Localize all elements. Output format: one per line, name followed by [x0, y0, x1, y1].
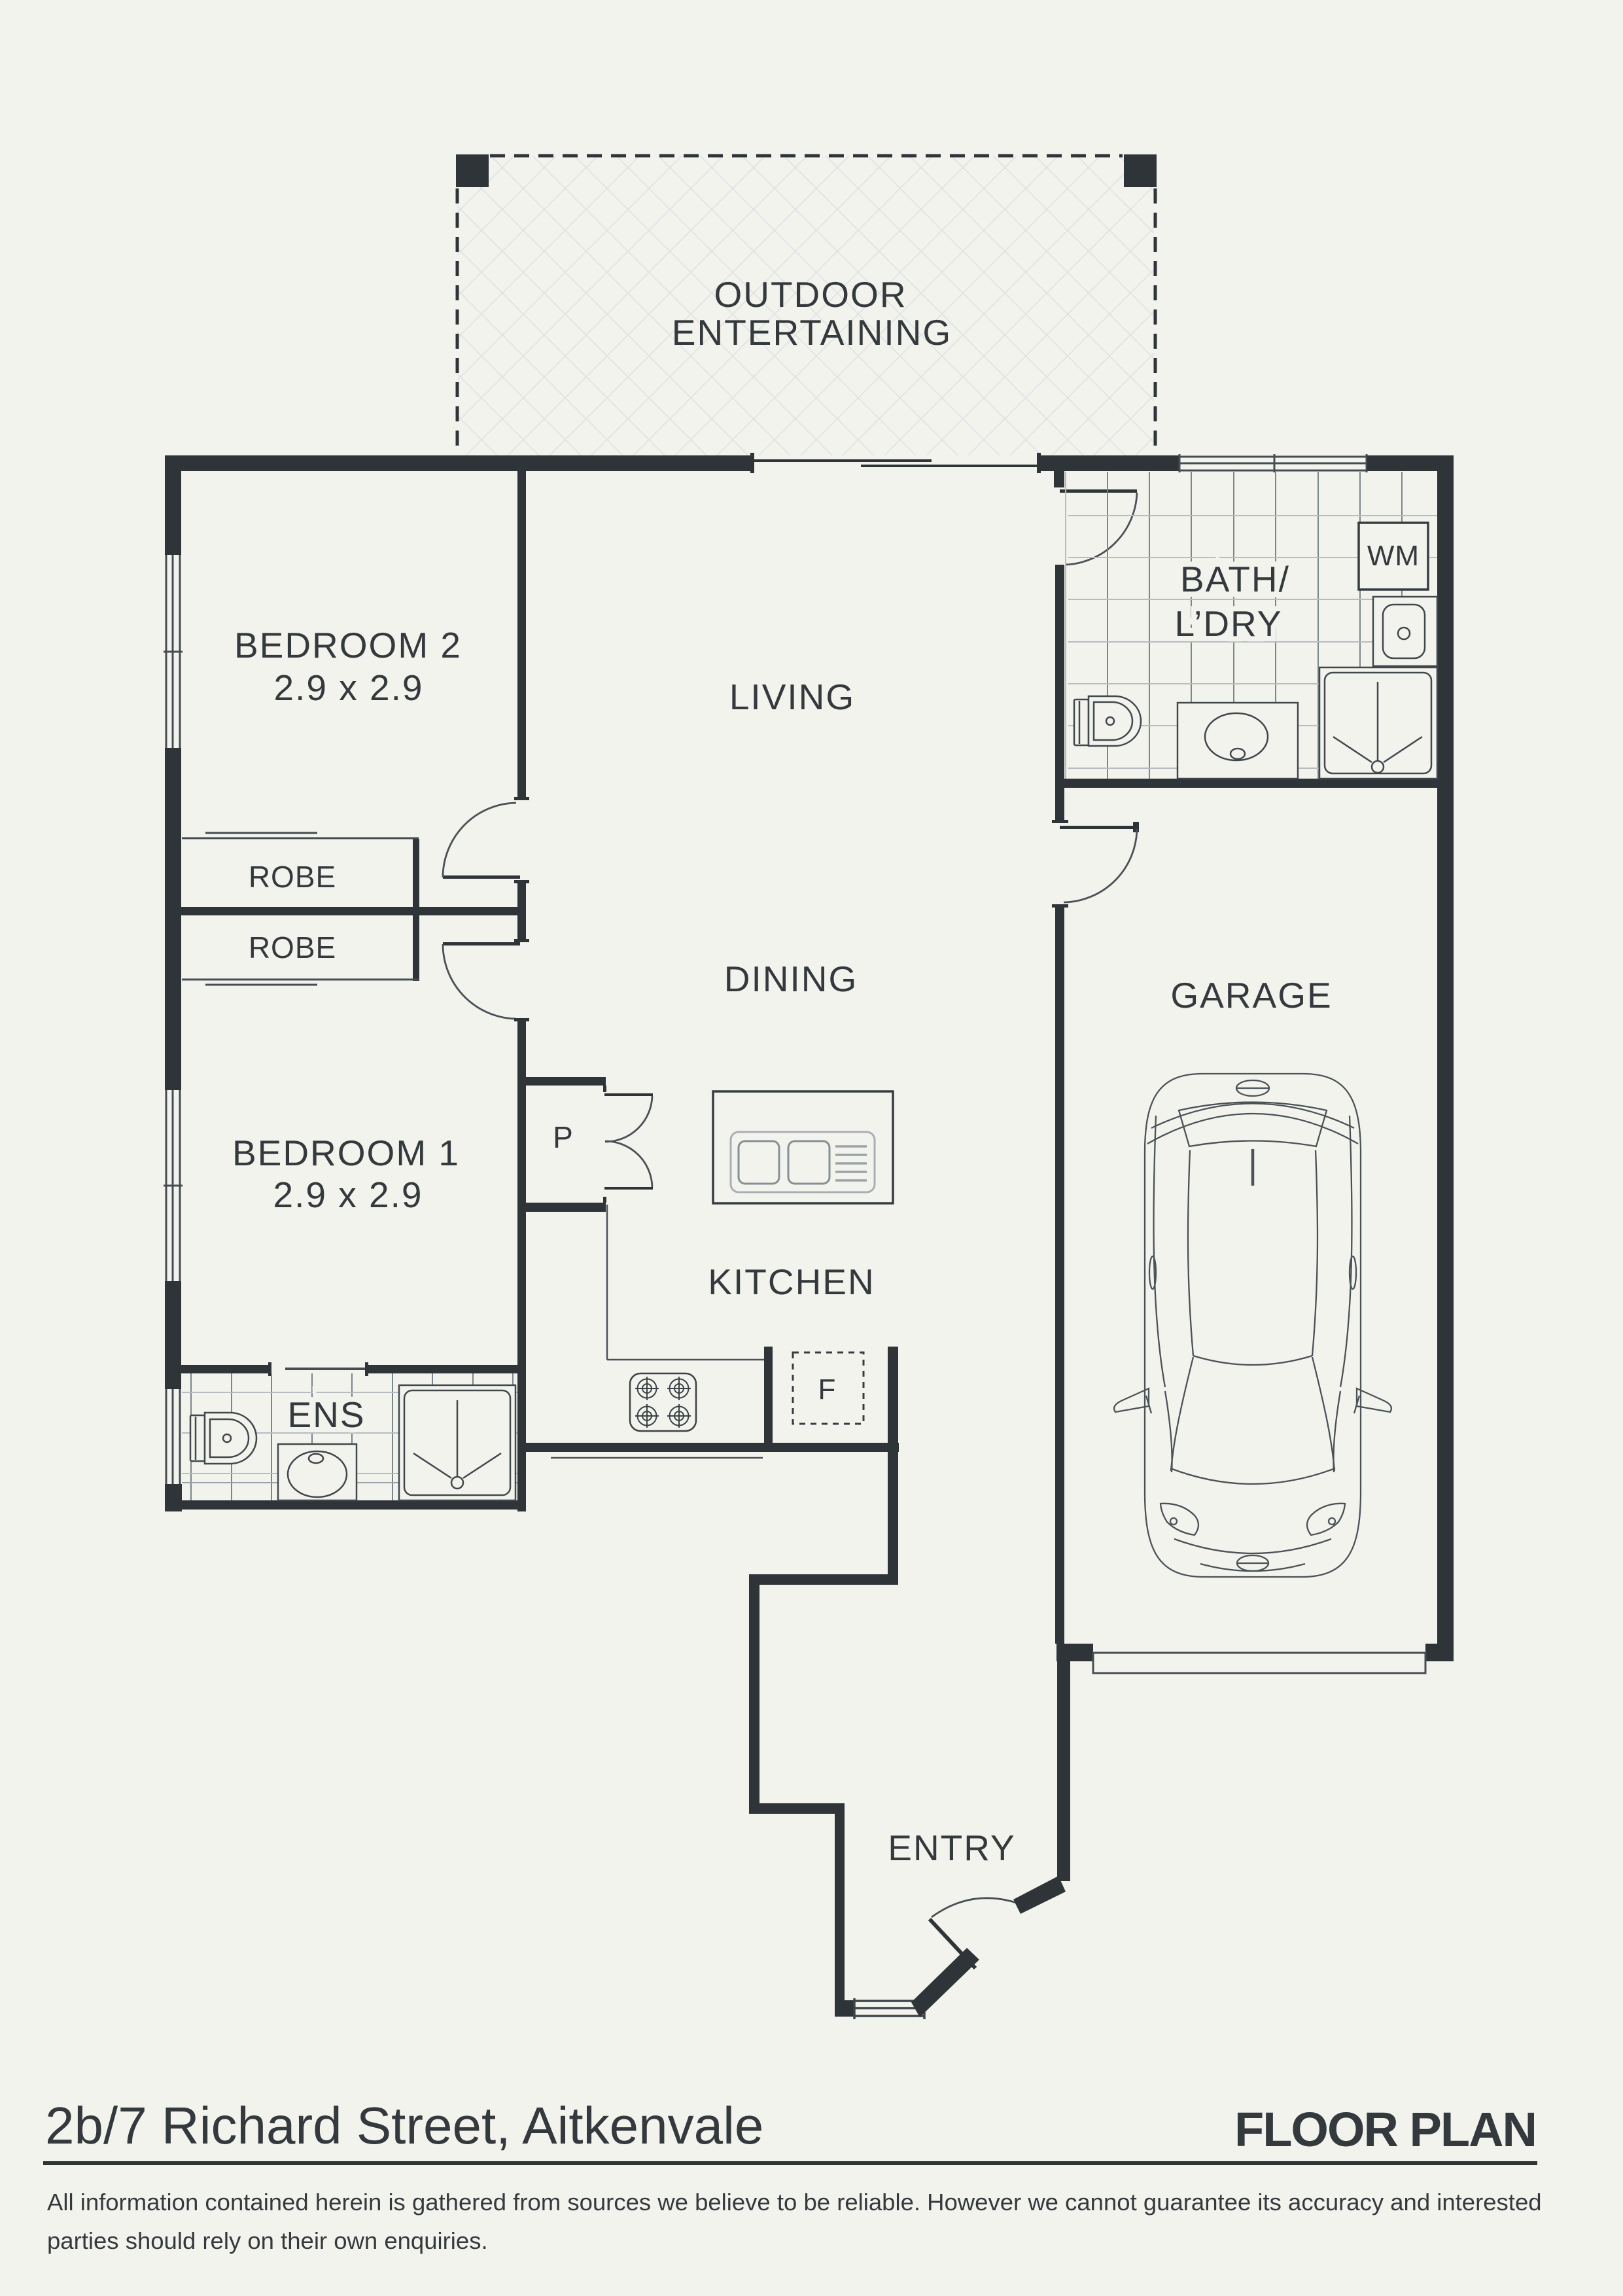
- svg-text:WM: WM: [1367, 540, 1420, 572]
- svg-text:ENTERTAINING: ENTERTAINING: [672, 312, 952, 353]
- svg-text:LIVING: LIVING: [729, 677, 855, 717]
- svg-text:ENTRY: ENTRY: [888, 1828, 1015, 1868]
- svg-text:2.9 x 2.9: 2.9 x 2.9: [273, 1174, 423, 1215]
- svg-text:GARAGE: GARAGE: [1170, 975, 1332, 1016]
- svg-text:F: F: [818, 1373, 836, 1405]
- svg-text:ENS: ENS: [287, 1394, 365, 1435]
- svg-text:BEDROOM 1: BEDROOM 1: [232, 1133, 460, 1173]
- svg-text:DINING: DINING: [724, 959, 858, 999]
- svg-text:FLOOR PLAN: FLOOR PLAN: [1234, 2102, 1536, 2157]
- svg-text:2b/7 Richard Street, Aitkenval: 2b/7 Richard Street, Aitkenvale: [45, 2096, 763, 2155]
- svg-text:2.9 x 2.9: 2.9 x 2.9: [274, 667, 424, 708]
- svg-text:P: P: [553, 1120, 574, 1154]
- svg-text:ROBE: ROBE: [249, 930, 336, 964]
- svg-text:ROBE: ROBE: [249, 860, 336, 894]
- svg-text:parties should rely on their o: parties should rely on their own enquiri…: [47, 2227, 488, 2254]
- svg-text:BATH/: BATH/: [1180, 559, 1290, 599]
- svg-text:L’DRY: L’DRY: [1175, 603, 1283, 644]
- svg-text:BEDROOM 2: BEDROOM 2: [234, 625, 462, 665]
- svg-text:KITCHEN: KITCHEN: [708, 1262, 875, 1302]
- svg-text:All information contained here: All information contained herein is gath…: [47, 2189, 1542, 2216]
- svg-text:OUTDOOR: OUTDOOR: [714, 274, 907, 315]
